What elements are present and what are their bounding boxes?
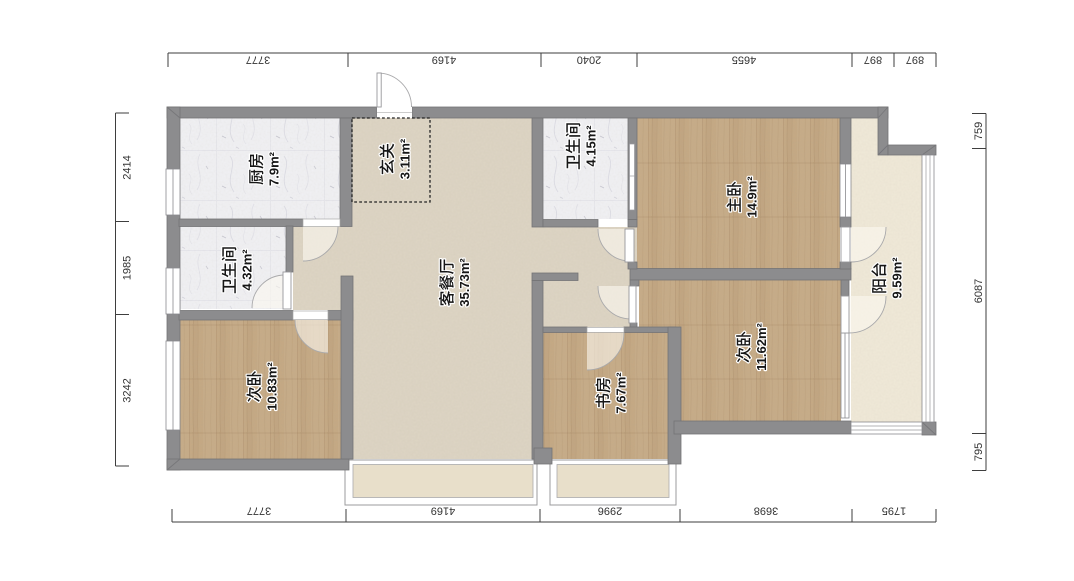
svg-text:897: 897: [864, 54, 882, 66]
svg-text:4655: 4655: [732, 54, 756, 66]
svg-text:3.11m²: 3.11m²: [398, 138, 413, 179]
svg-text:4169: 4169: [432, 54, 456, 66]
svg-text:2996: 2996: [598, 505, 622, 517]
svg-text:6087: 6087: [973, 279, 985, 303]
svg-text:14.9m²: 14.9m²: [745, 176, 760, 218]
svg-text:3777: 3777: [246, 54, 270, 66]
svg-text:1795: 1795: [882, 505, 906, 517]
svg-text:4169: 4169: [431, 505, 455, 517]
svg-text:3698: 3698: [754, 505, 778, 517]
svg-text:1985: 1985: [122, 256, 134, 280]
svg-text:2414: 2414: [122, 155, 134, 179]
svg-text:35.73m²: 35.73m²: [457, 258, 472, 307]
svg-text:3242: 3242: [122, 378, 134, 402]
svg-text:795: 795: [973, 443, 985, 461]
svg-text:897: 897: [906, 54, 924, 66]
svg-text:11.62m²: 11.62m²: [754, 322, 769, 370]
svg-text:9.59m²: 9.59m²: [890, 257, 905, 299]
svg-text:759: 759: [973, 122, 985, 140]
svg-text:10.83m²: 10.83m²: [265, 362, 280, 411]
svg-text:7.67m²: 7.67m²: [614, 372, 629, 414]
svg-text:4.32m²: 4.32m²: [240, 249, 255, 291]
svg-text:7.9m²: 7.9m²: [267, 151, 282, 186]
svg-text:3777: 3777: [247, 505, 271, 517]
svg-text:2040: 2040: [577, 54, 601, 66]
svg-text:4.15m²: 4.15m²: [584, 125, 599, 167]
